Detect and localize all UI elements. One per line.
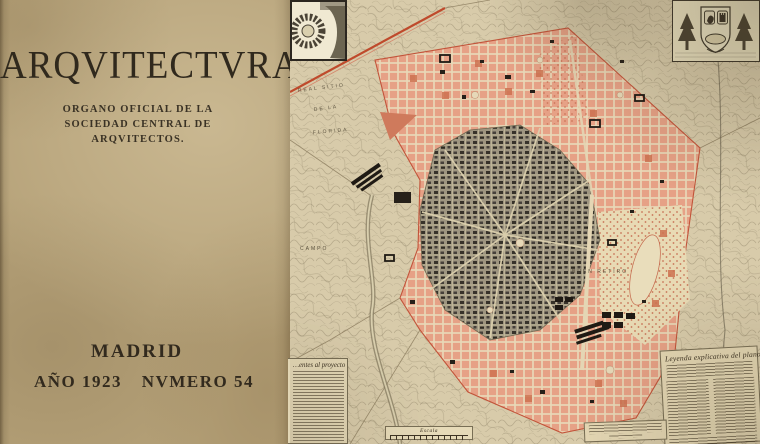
notes-title: …entes al proyecto [293,362,344,369]
legend-column-left [666,379,710,436]
cover-footer: AÑO 1923 NVMERO 54 [34,372,254,392]
label-campo: CAMPO [300,246,328,252]
left-tree-icon [678,13,696,50]
coat-of-arms-art [673,1,758,60]
cartouche-art [292,2,345,59]
pond-emblem [706,34,726,44]
madrid-ensanche-map: REAL SITIO DE LA FLORIDA CAMPO BUEN RETI… [290,0,760,444]
scale-bar: Escala [385,426,473,440]
magazine-cover: ARQVITECTVRA ORGANO OFICIAL DE LA SOCIED… [0,0,290,444]
map-legend: Leyenda explicativa del plano [660,346,760,444]
caption-text [589,423,662,435]
project-notes: …entes al proyecto [288,358,348,444]
cover-subtitle-line2: SOCIEDAD CENTRAL DE [0,117,276,132]
label-buen-retiro: BUEN RETIRO [572,269,628,275]
map-cartouche [290,0,347,61]
legend-column-right [713,377,757,434]
legend-footnote [669,435,757,444]
cover-subtitle-line3: ARQVITECTOS. [0,132,276,147]
right-tree-icon [735,13,753,50]
cover-year: AÑO 1923 [34,372,122,392]
cover-title: ARQVITECTVRA [0,43,284,89]
notes-text [293,371,344,441]
map-caption [584,420,668,443]
coat-of-arms [672,0,760,62]
scale-ticks [390,435,468,440]
legend-intro-text [666,361,753,378]
cover-subtitle-line1: ORGANO OFICIAL DE LA [0,102,276,117]
legend-columns [666,377,757,437]
castle-icon [720,13,726,22]
scale-label: Escala [390,428,468,434]
caption-signature [609,434,642,438]
scanned-page: ARQVITECTVRA ORGANO OFICIAL DE LA SOCIED… [0,0,760,444]
cover-subtitle: ORGANO OFICIAL DE LA SOCIEDAD CENTRAL DE… [0,102,276,148]
cover-issue-number: NVMERO 54 [142,372,254,392]
cover-city: MADRID [0,341,274,363]
